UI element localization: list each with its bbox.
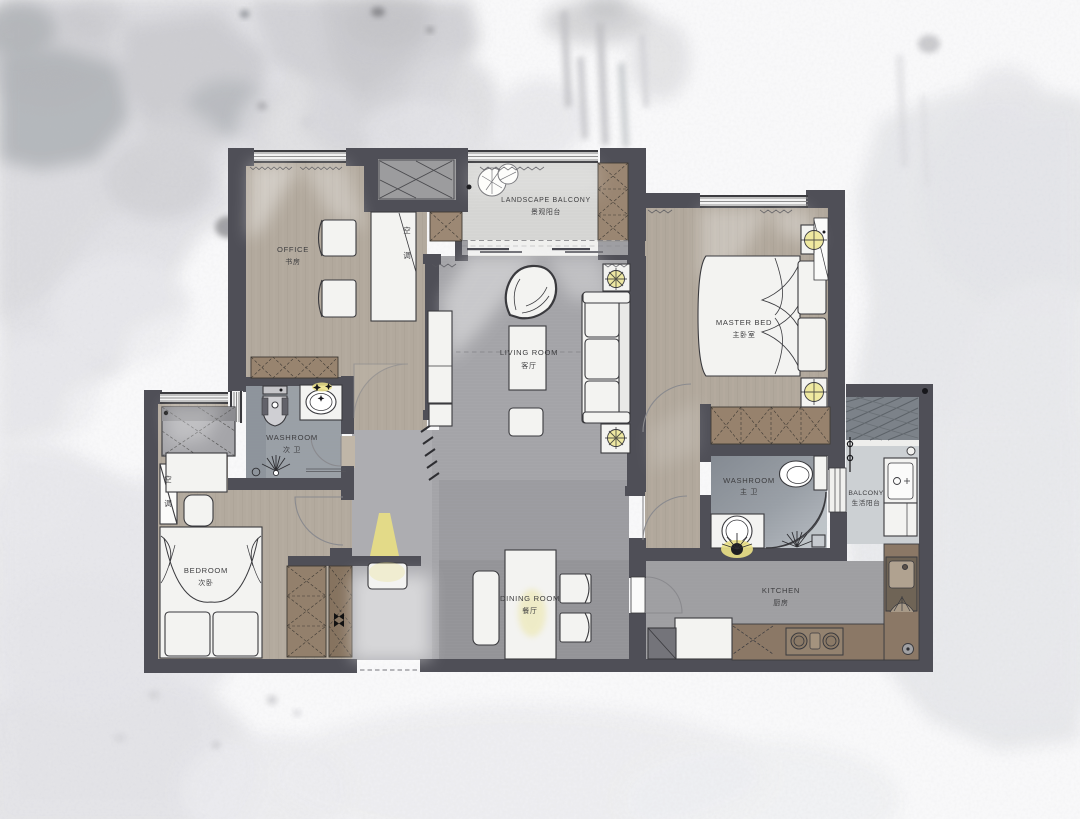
svg-text:调: 调 [403, 251, 411, 260]
svg-text:餐厅: 餐厅 [522, 606, 537, 615]
svg-text:书房: 书房 [285, 257, 300, 266]
svg-text:KITCHEN: KITCHEN [762, 586, 800, 595]
svg-text:景观阳台: 景观阳台 [531, 207, 561, 216]
svg-text:BALCONY: BALCONY [848, 490, 883, 497]
svg-text:次卧: 次卧 [198, 578, 213, 587]
svg-text:DINING ROOM: DINING ROOM [500, 594, 560, 603]
svg-text:BEDROOM: BEDROOM [184, 566, 228, 575]
svg-text:OFFICE: OFFICE [277, 245, 309, 254]
svg-text:空: 空 [164, 474, 172, 484]
svg-text:主 卫: 主 卫 [740, 487, 758, 496]
svg-text:客厅: 客厅 [521, 361, 536, 370]
svg-text:LIVING ROOM: LIVING ROOM [500, 348, 558, 357]
svg-text:WASHROOM: WASHROOM [266, 433, 318, 442]
svg-text:调: 调 [164, 499, 172, 508]
svg-text:生活阳台: 生活阳台 [852, 498, 881, 507]
svg-text:主卧室: 主卧室 [732, 330, 755, 339]
svg-text:次 卫: 次 卫 [283, 445, 301, 454]
svg-text:WASHROOM: WASHROOM [723, 476, 775, 485]
svg-text:LANDSCAPE BALCONY: LANDSCAPE BALCONY [501, 197, 591, 204]
svg-text:MASTER BED: MASTER BED [716, 318, 772, 327]
svg-text:厨房: 厨房 [773, 598, 788, 607]
svg-text:空: 空 [403, 225, 411, 235]
